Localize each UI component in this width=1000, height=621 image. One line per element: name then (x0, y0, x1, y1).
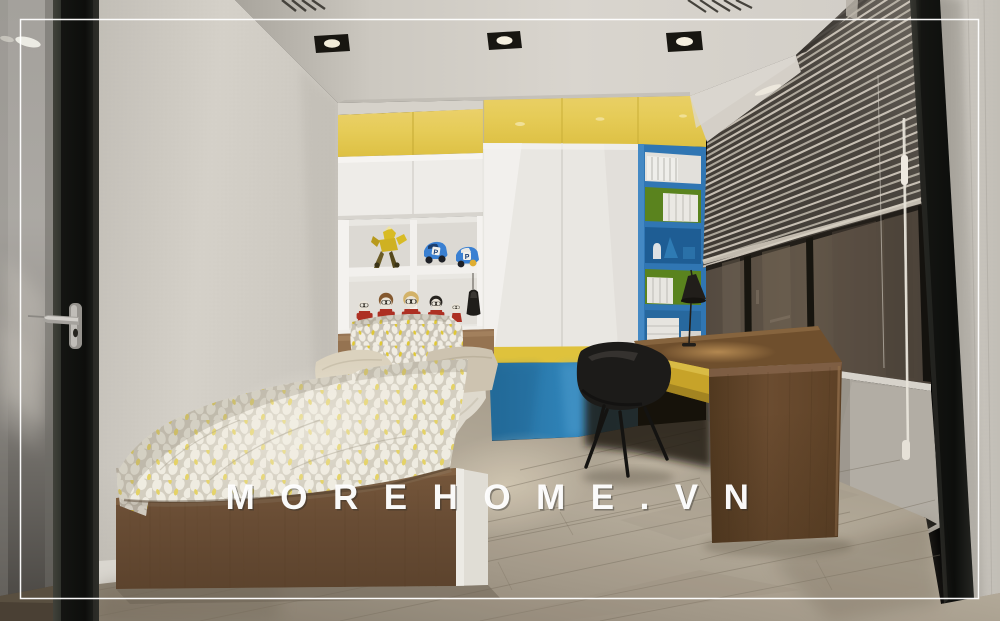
svg-text:MOREHOME.VN: MOREHOME.VN (226, 478, 775, 517)
svg-text:P: P (465, 254, 470, 261)
